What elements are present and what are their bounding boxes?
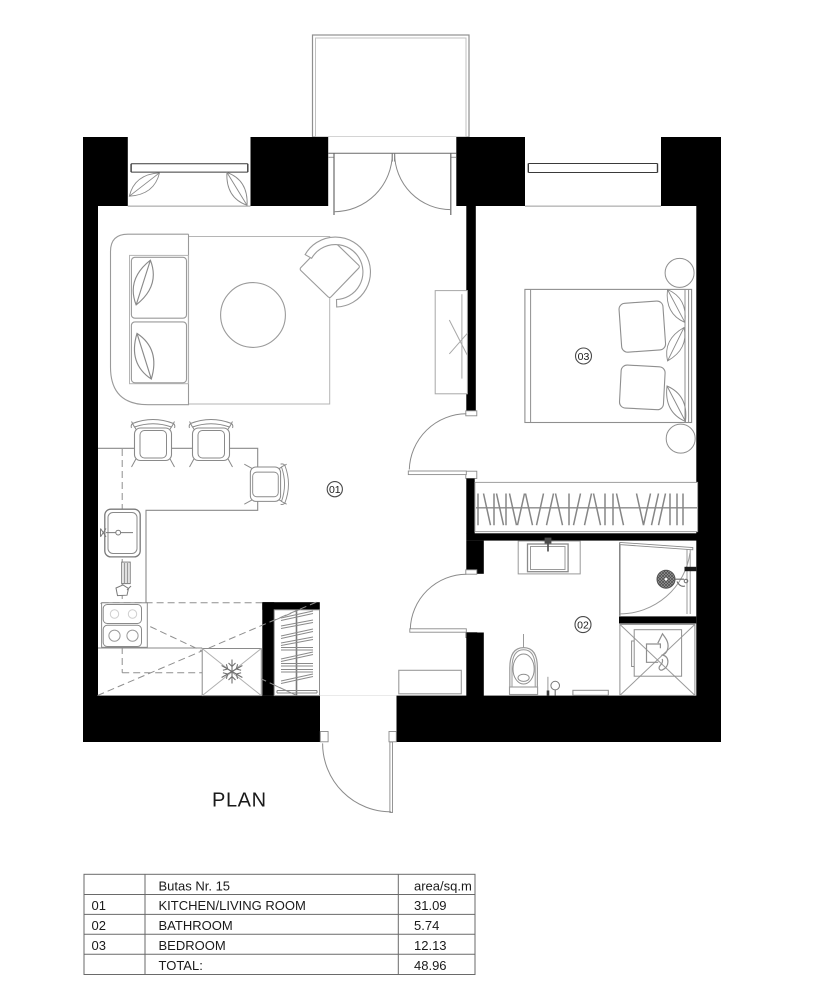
svg-text:12.13: 12.13 (414, 938, 447, 953)
svg-text:5.74: 5.74 (414, 918, 439, 933)
svg-text:31.09: 31.09 (414, 898, 447, 913)
svg-text:Butas Nr. 15: Butas Nr. 15 (159, 878, 231, 893)
svg-text:TOTAL:: TOTAL: (159, 958, 203, 973)
svg-text:48.96: 48.96 (414, 958, 447, 973)
svg-text:03: 03 (578, 351, 590, 363)
svg-text:BEDROOM: BEDROOM (159, 938, 226, 953)
svg-text:01: 01 (92, 898, 106, 913)
svg-text:PLAN: PLAN (212, 789, 267, 811)
svg-text:02: 02 (577, 620, 589, 632)
svg-text:area/sq.m: area/sq.m (414, 878, 472, 893)
svg-text:KITCHEN/LIVING ROOM: KITCHEN/LIVING ROOM (159, 898, 306, 913)
svg-text:03: 03 (92, 938, 106, 953)
svg-text:02: 02 (92, 918, 106, 933)
svg-text:BATHROOM: BATHROOM (159, 918, 233, 933)
svg-text:01: 01 (329, 484, 341, 496)
